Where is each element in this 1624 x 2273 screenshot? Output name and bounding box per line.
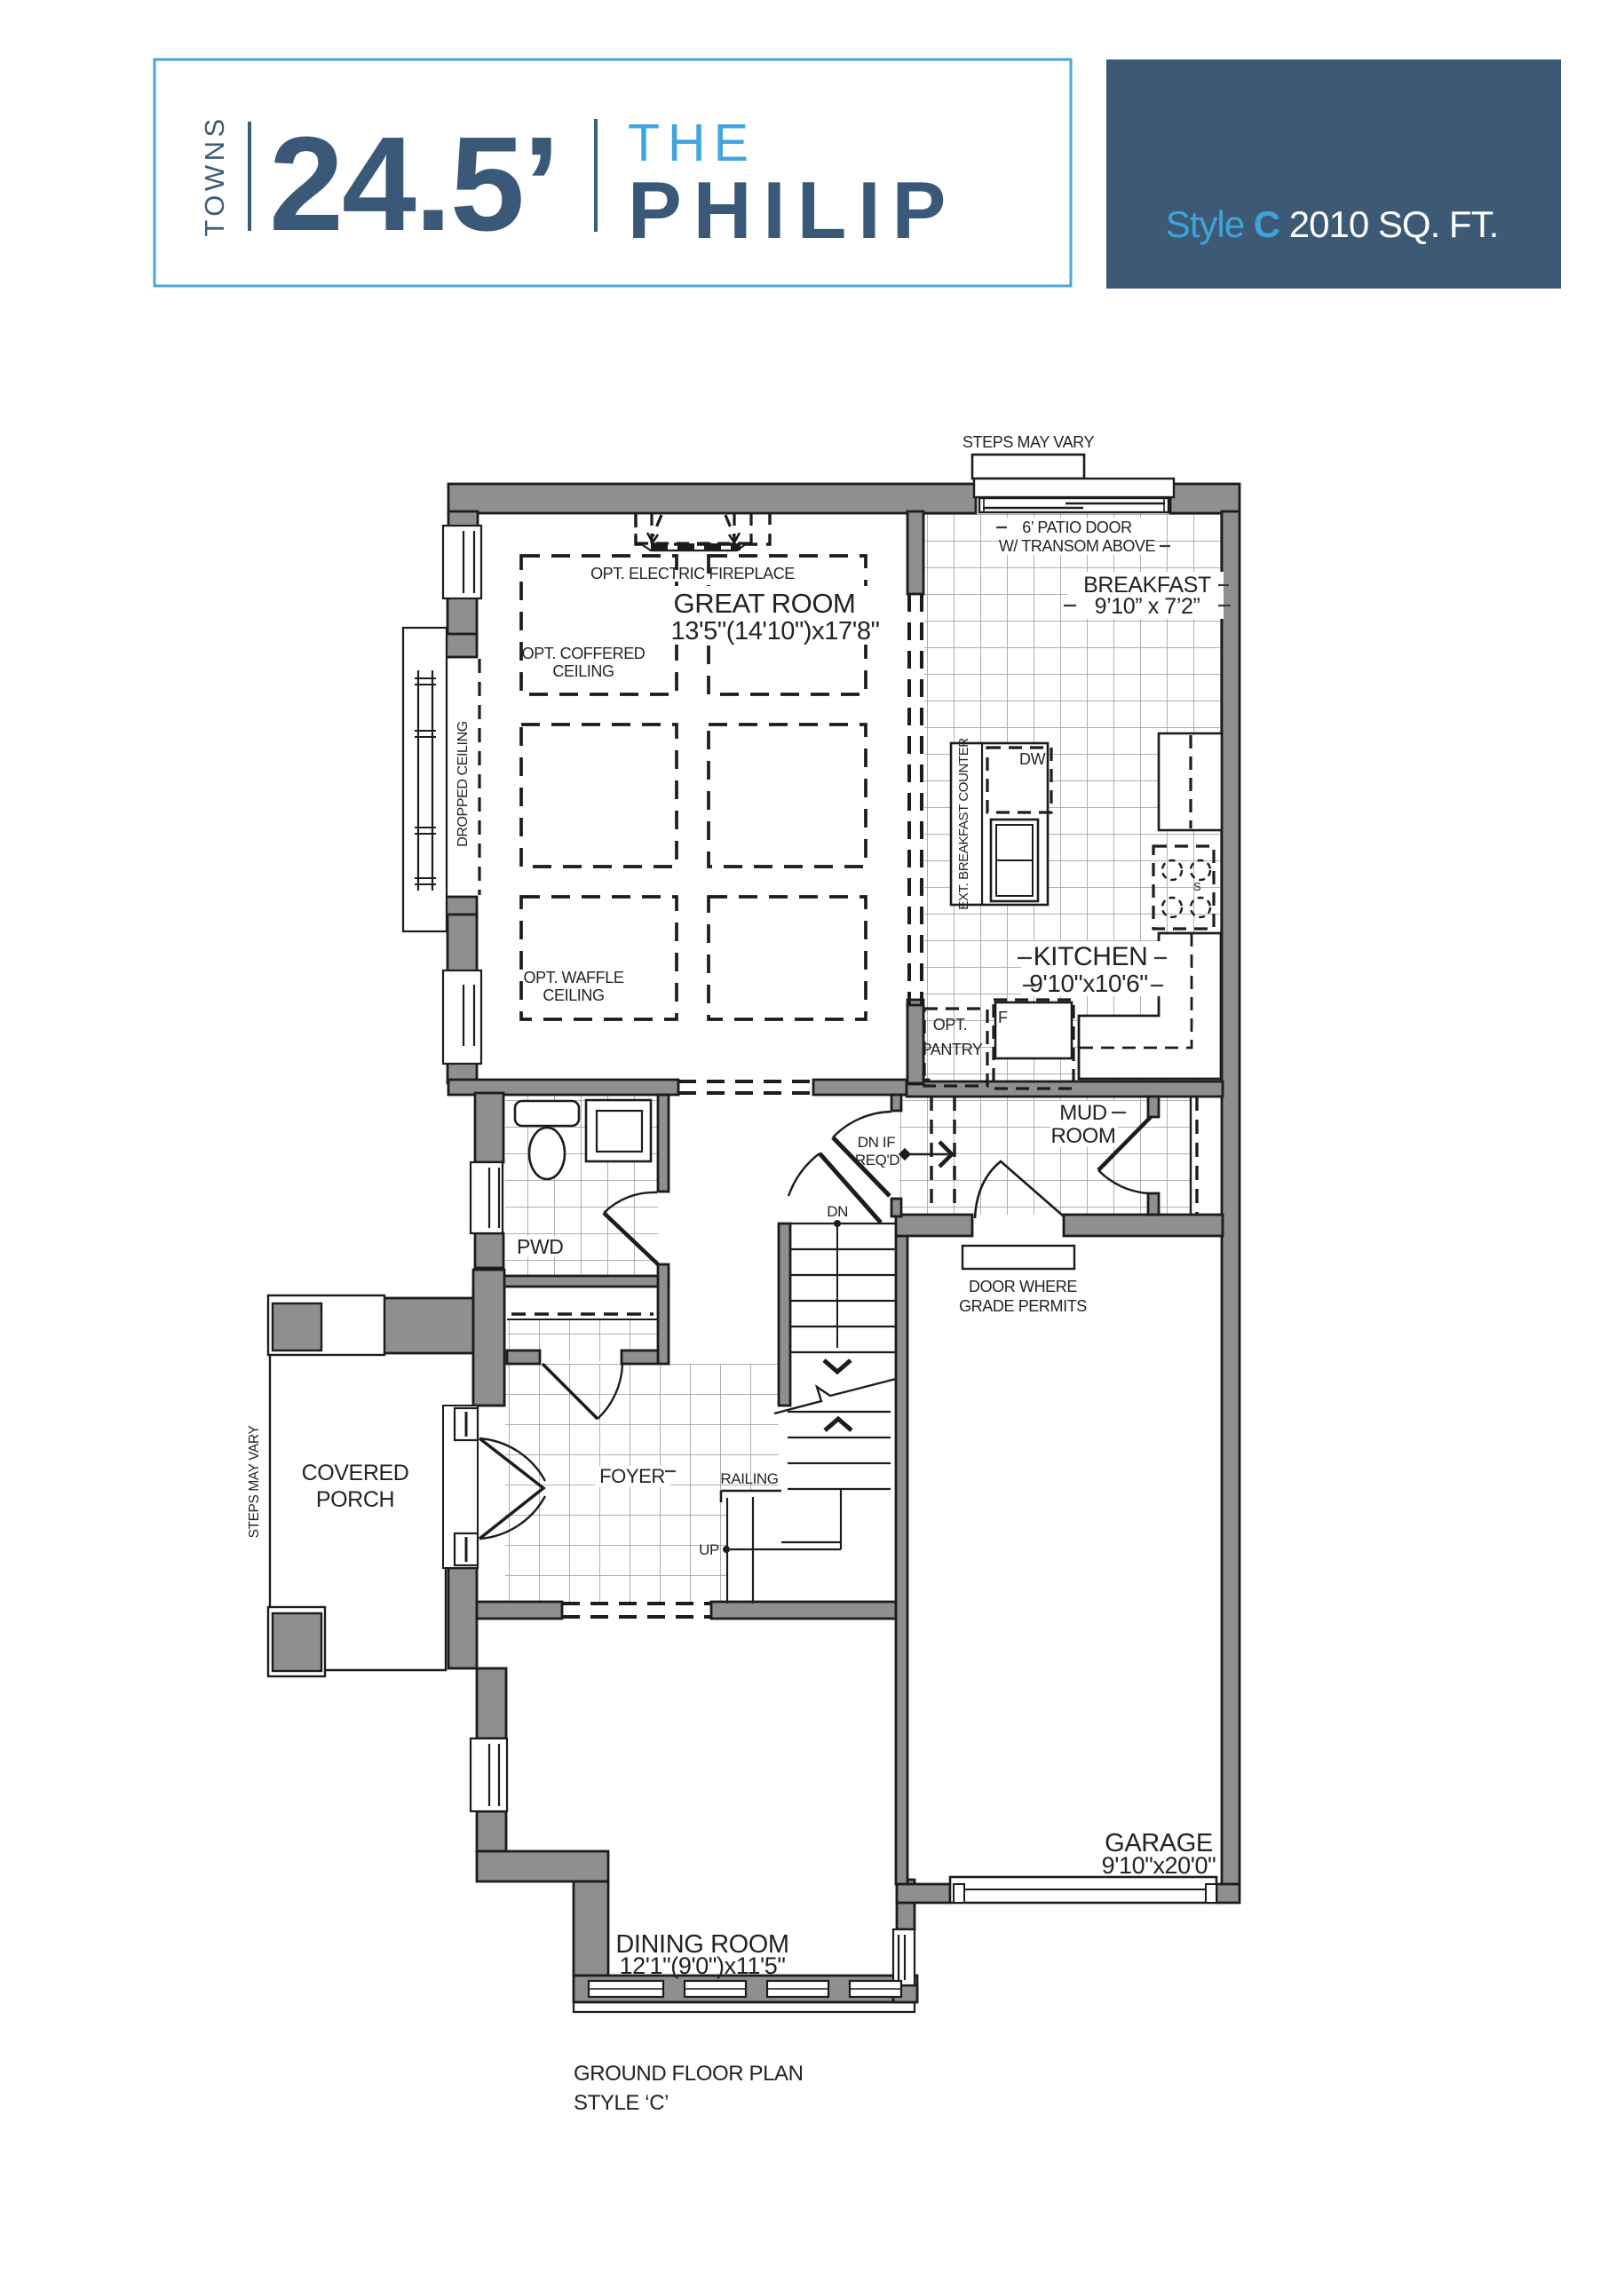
svg-text:THE: THE <box>628 114 757 172</box>
svg-text:CEILING: CEILING <box>543 986 604 1004</box>
svg-text:9'10"x10'6": 9'10"x10'6" <box>1029 970 1148 997</box>
svg-text:12'1"(9'0")x11'5": 12'1"(9'0")x11'5" <box>619 1952 785 1979</box>
svg-text:9'10"x20'0": 9'10"x20'0" <box>1102 1852 1216 1879</box>
svg-text:TOWNS: TOWNS <box>199 115 230 236</box>
svg-text:REQ'D: REQ'D <box>855 1152 899 1168</box>
svg-text:PWD: PWD <box>517 1235 563 1258</box>
svg-text:COVERED: COVERED <box>302 1461 409 1485</box>
svg-text:PHILIP: PHILIP <box>628 166 957 256</box>
svg-text:GROUND FLOOR PLAN: GROUND FLOOR PLAN <box>574 2062 804 2086</box>
svg-text:OPT. WAFFLE: OPT. WAFFLE <box>524 969 624 986</box>
svg-text:STYLE ‘C’: STYLE ‘C’ <box>574 2091 669 2115</box>
svg-text:24.5’: 24.5’ <box>269 108 558 258</box>
svg-text:GREAT ROOM: GREAT ROOM <box>674 588 856 619</box>
svg-text:13'5"(14'10")x17'8": 13'5"(14'10")x17'8" <box>671 617 880 645</box>
svg-text:S: S <box>1193 880 1201 893</box>
svg-text:FOYER: FOYER <box>599 1465 665 1487</box>
svg-text:DROPPED CEILING: DROPPED CEILING <box>456 721 471 847</box>
svg-text:DN: DN <box>827 1203 848 1220</box>
svg-text:MUD: MUD <box>1059 1101 1107 1125</box>
svg-text:ROOM: ROOM <box>1050 1124 1115 1148</box>
svg-text:W/ TRANSOM ABOVE: W/ TRANSOM ABOVE <box>999 537 1156 555</box>
svg-text:GRADE PERMITS: GRADE PERMITS <box>959 1297 1087 1315</box>
svg-text:PORCH: PORCH <box>316 1487 394 1512</box>
svg-text:9’10” x 7’2”: 9’10” x 7’2” <box>1095 594 1200 619</box>
svg-text:STEPS MAY VARY: STEPS MAY VARY <box>963 433 1095 451</box>
svg-text:UP: UP <box>699 1541 719 1558</box>
svg-text:DW: DW <box>1019 750 1046 768</box>
svg-text:EXT. BREAKFAST COUNTER: EXT. BREAKFAST COUNTER <box>956 738 971 910</box>
svg-text:DOOR WHERE: DOOR WHERE <box>969 1278 1077 1295</box>
svg-text:CEILING: CEILING <box>552 662 614 680</box>
svg-text:PANTRY: PANTRY <box>922 1041 983 1058</box>
svg-text:Style C 2010 SQ. FT.: Style C 2010 SQ. FT. <box>1166 203 1499 245</box>
svg-text:DN IF: DN IF <box>858 1134 895 1151</box>
svg-text:6’ PATIO DOOR: 6’ PATIO DOOR <box>1022 519 1132 536</box>
svg-text:STEPS MAY VARY: STEPS MAY VARY <box>247 1426 262 1539</box>
svg-text:F: F <box>998 1009 1008 1026</box>
svg-text:RAILING: RAILING <box>720 1470 778 1487</box>
svg-text:OPT. ELECTRIC FIREPLACE: OPT. ELECTRIC FIREPLACE <box>590 565 795 582</box>
svg-text:KITCHEN: KITCHEN <box>1034 942 1148 971</box>
svg-text:OPT. COFFERED: OPT. COFFERED <box>522 645 646 662</box>
svg-text:OPT.: OPT. <box>933 1016 967 1034</box>
